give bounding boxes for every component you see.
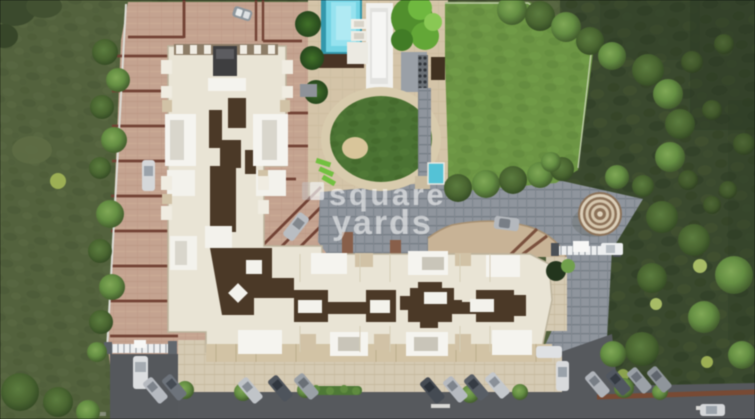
svg-text:yards: yards: [332, 204, 433, 242]
